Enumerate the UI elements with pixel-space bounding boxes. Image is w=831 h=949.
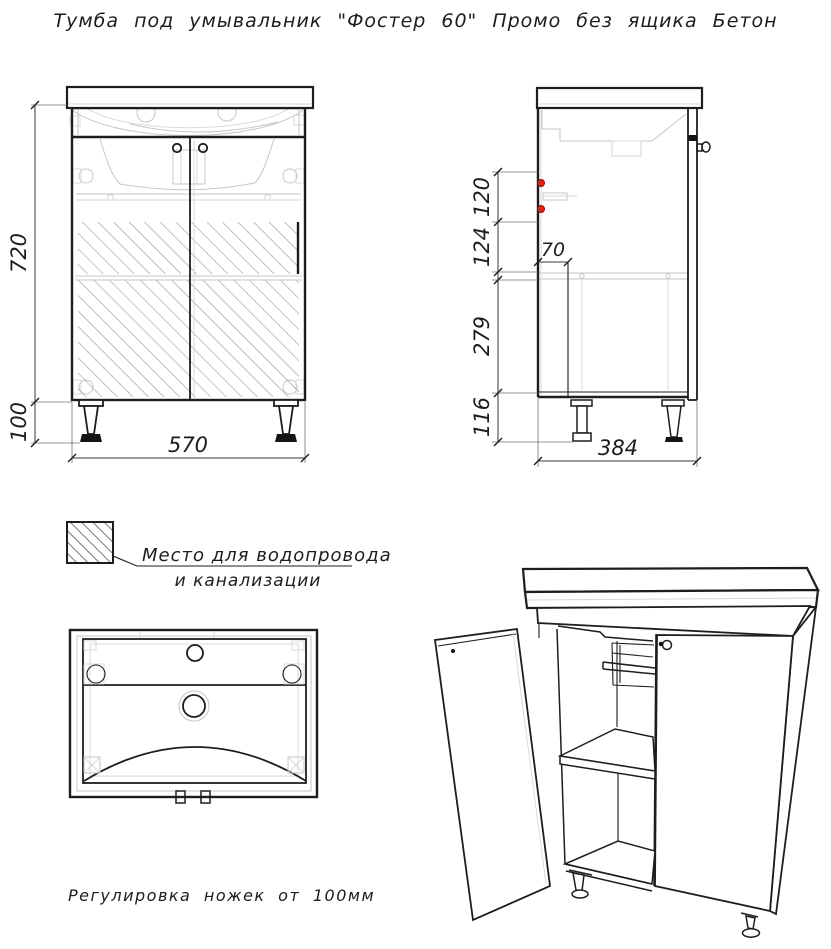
dim-116-label: 116 (470, 397, 494, 437)
front-view: 720 100 570 (7, 87, 313, 463)
plumbing-hatch-upper (78, 222, 299, 274)
legs-adjust-note: Регулировка ножек от 100мм (68, 886, 375, 905)
dim-120-label: 120 (470, 177, 494, 217)
dim-plumbing-label: 70 (541, 239, 565, 261)
legend-line1: Место для водопровода (142, 545, 392, 566)
drain-hole (183, 695, 205, 717)
handle-knob-side (697, 142, 710, 152)
legend: Место для водопровода и канализации (67, 522, 392, 591)
cabinet-interior-3d (557, 626, 656, 891)
legend-line2: и канализации (175, 571, 322, 591)
top-view (70, 630, 317, 803)
left-door-open-3d (435, 629, 550, 920)
water-supply-point (538, 180, 545, 187)
dim-279-label: 279 (470, 316, 494, 356)
right-door-handle (199, 144, 207, 152)
side-view: 70 (470, 88, 710, 467)
dim-124-label: 124 (470, 227, 494, 267)
right-door-3d (655, 635, 793, 911)
slab-top-3d (523, 568, 818, 592)
water-supply-point (538, 206, 545, 213)
dim-depth-label: 384 (598, 436, 638, 460)
drawing-canvas: 720 100 570 (0, 0, 831, 949)
sink-slab-front (67, 87, 313, 108)
hatch-swatch (67, 522, 113, 563)
dim-height-label: 720 (7, 233, 31, 273)
dim-width-label: 570 (168, 433, 208, 457)
dim-legs-label: 100 (7, 402, 31, 442)
faucet-hole (187, 645, 203, 661)
perspective-view (435, 568, 818, 937)
sink-slab-side (537, 88, 702, 108)
plumbing-hatch-lower (78, 280, 299, 397)
technical-drawing-sheet: Тумба под умывальник "Фостер 60" Промо б… (0, 0, 831, 949)
left-door-handle (173, 144, 181, 152)
